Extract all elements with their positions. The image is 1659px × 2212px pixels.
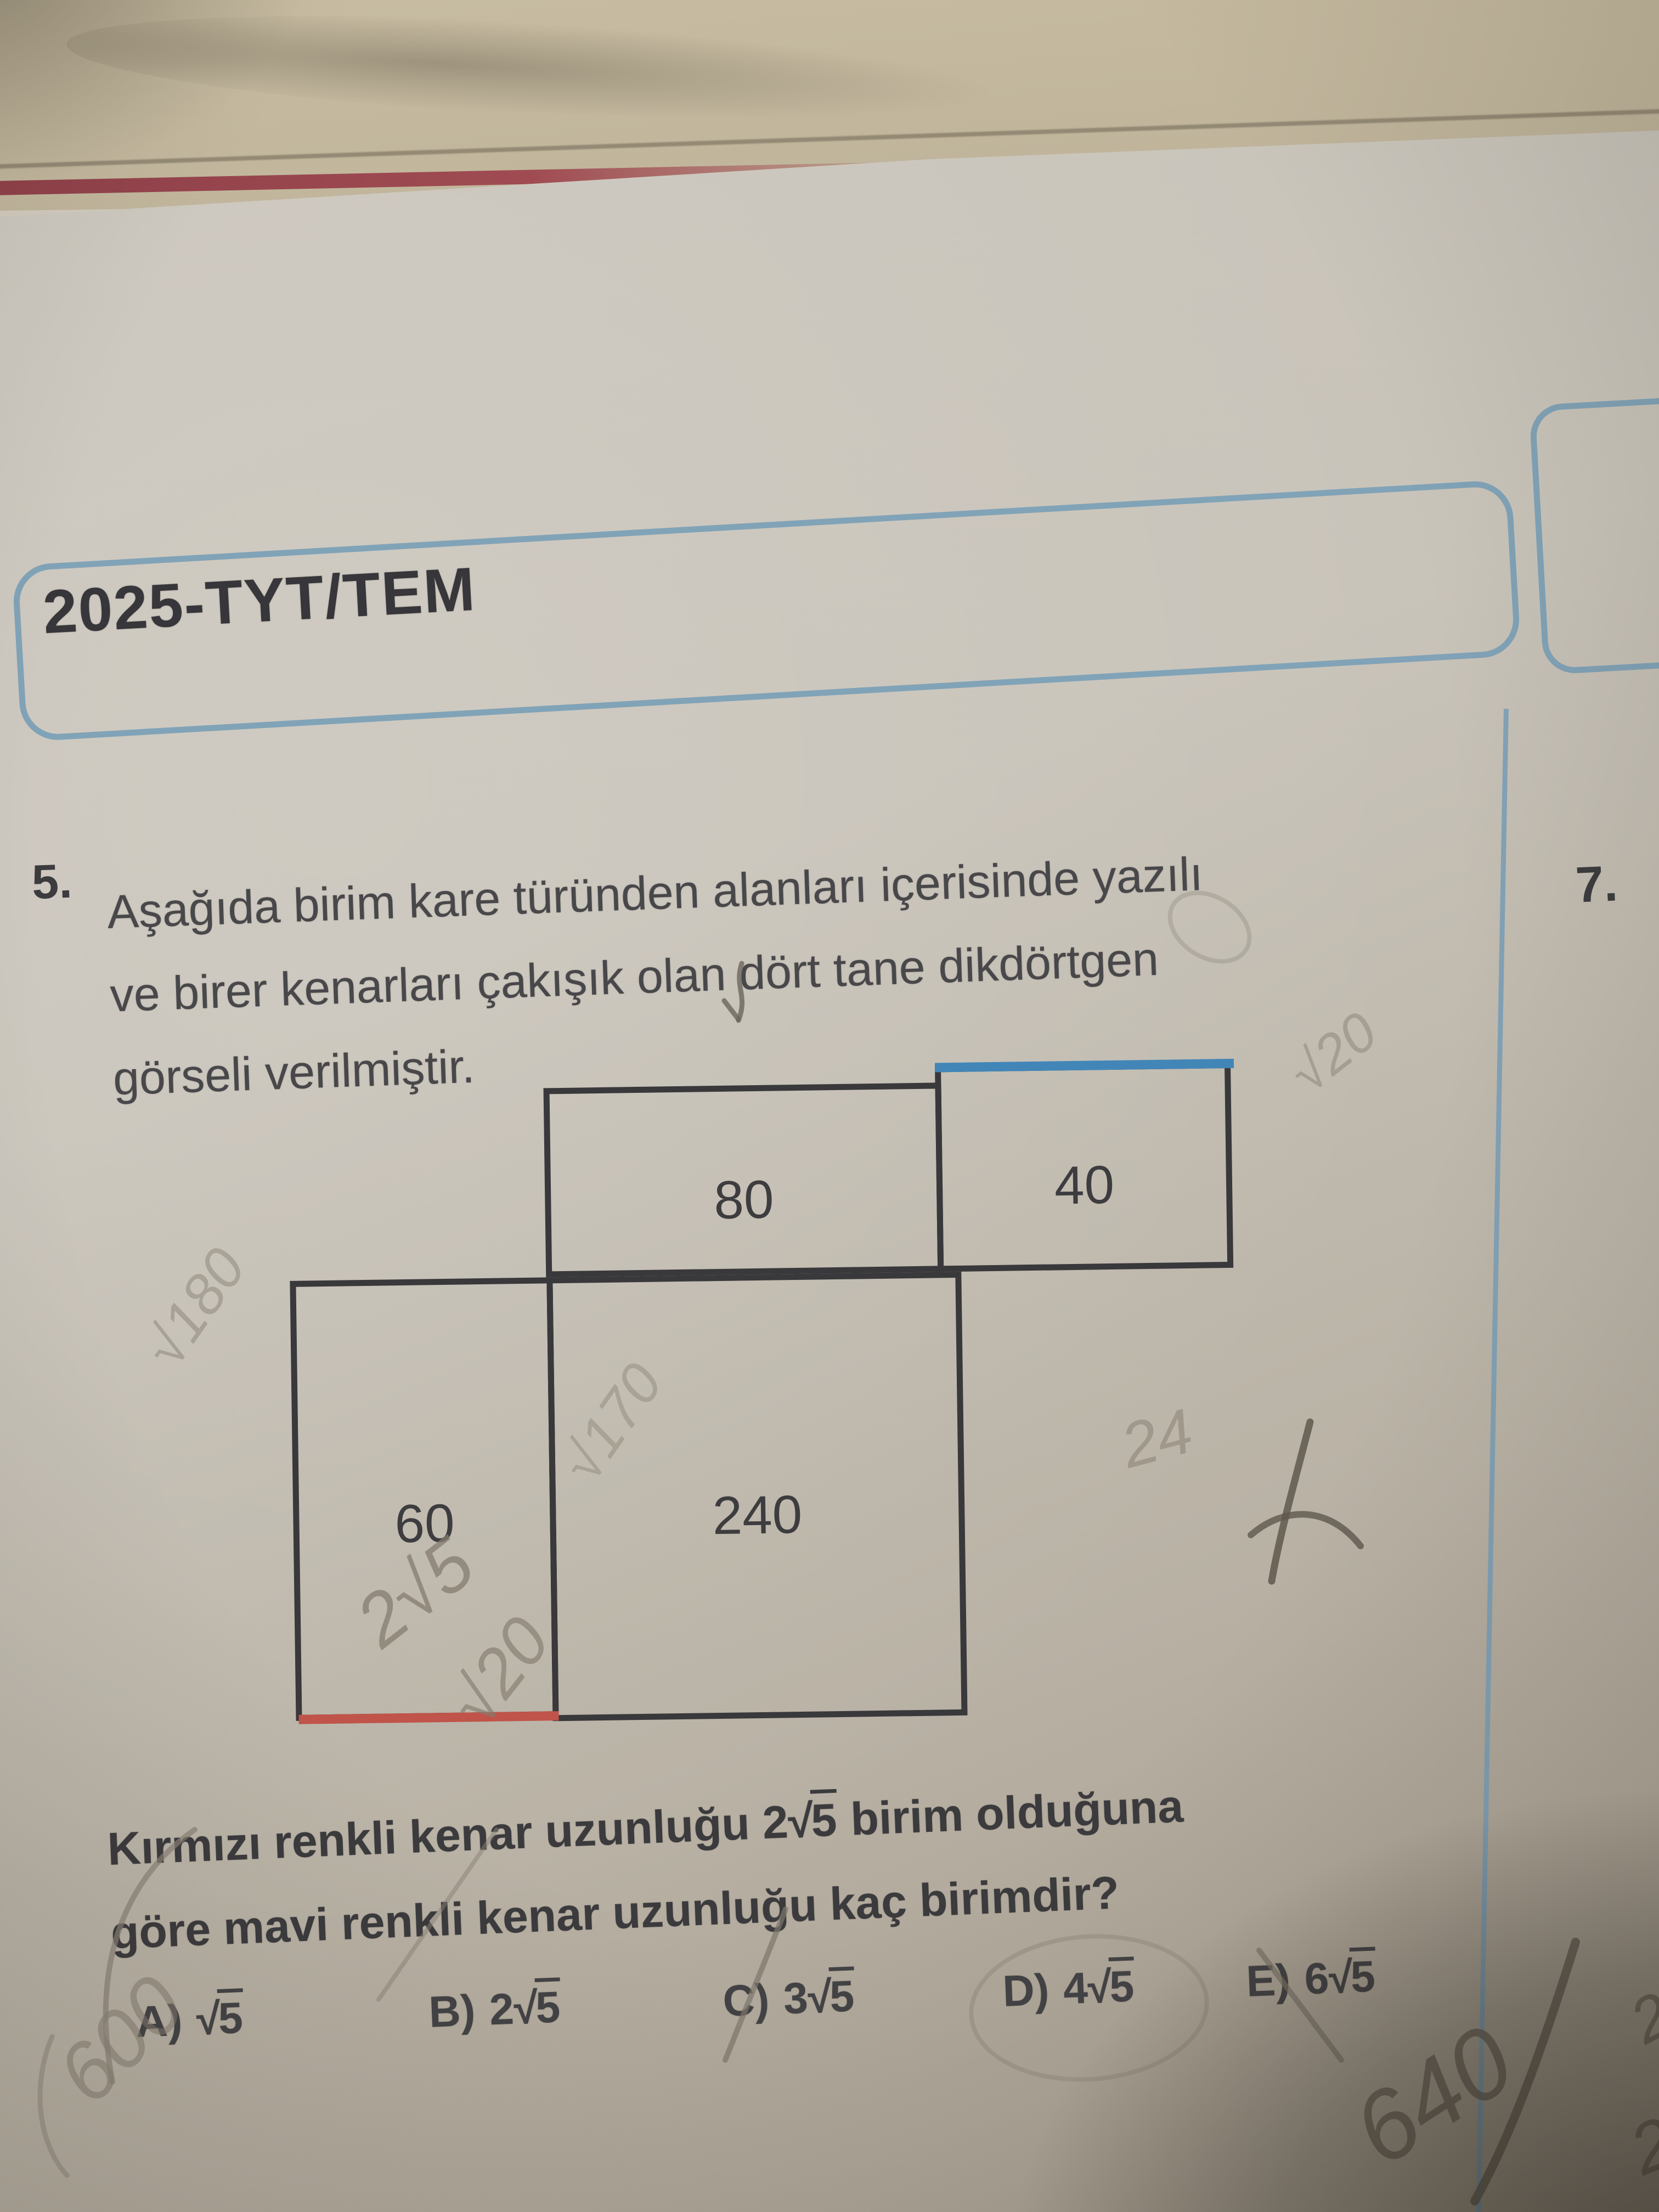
rectangle-area-240: 240 [546,1272,967,1721]
option-d-coef: 4 [1062,1963,1088,2013]
answer-option-c: C)3√5 [722,1971,856,2027]
option-b-radicand: 5 [534,1977,562,2032]
area-label-40: 40 [1053,1070,1115,1264]
answer-option-e: E)6√5 [1245,1951,1377,2006]
prompt-radicand: 5 [810,1789,839,1847]
rectangle-area-80: 80 [544,1082,944,1277]
prompt-prefix: Kırmızı renkli kenar uzunluğu [106,1797,764,1875]
option-a-radicand: 5 [217,1988,245,2043]
option-d-radicand: 5 [1108,1956,1136,2011]
answer-option-d: D)4√5 [1002,1961,1136,2017]
area-label-80: 80 [713,1091,775,1269]
option-b-letter: B) [428,1986,476,2036]
option-e-radicand: 5 [1350,1946,1377,2001]
prompt-coef: 2 [761,1796,789,1848]
photo-of-exam-page: 2025-TYT/TEM 7. 5. Aşağıda birim kare tü… [0,0,1659,2212]
option-e-coef: 6 [1304,1954,1330,2004]
rectangles-diagram: 80 40 60 240 [285,1057,1249,1736]
option-c-radicand: 5 [828,1966,856,2021]
right-column-header-frame [1529,392,1659,675]
area-label-240: 240 [709,1280,805,1713]
option-c-coef: 3 [782,1973,809,2023]
option-d-letter: D) [1002,1965,1050,2016]
option-e-letter: E) [1245,1955,1291,2006]
option-c-letter: C) [722,1975,770,2025]
option-b-coef: 2 [488,1984,515,2034]
rectangle-area-40: 40 [935,1062,1233,1272]
prompt-suffix: birim olduğuna [837,1780,1184,1846]
question-5-number: 5. [31,853,73,910]
question-7-number: 7. [1575,855,1619,914]
answer-option-b: B)2√5 [428,1982,562,2038]
